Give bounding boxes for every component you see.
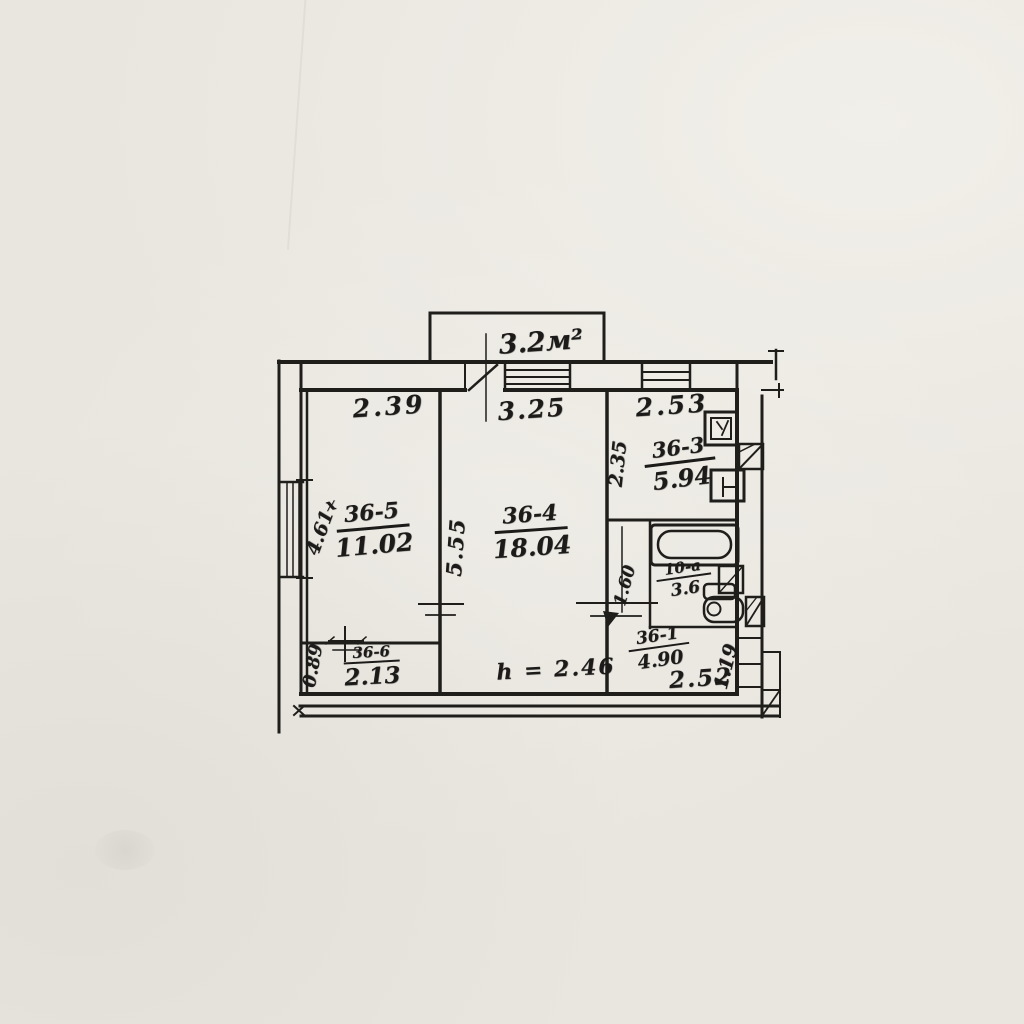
dim-room5-width: 2.39 — [352, 391, 427, 422]
ceiling-height-note: h = 2.46 — [496, 655, 616, 684]
room4-label: 36-4 18.04 — [490, 501, 572, 563]
floor-plan-scan: 3.2м² 2.39 3.25 2.53 х 36-5 11.02 4.61 3… — [0, 0, 1024, 1024]
vent-hatch-icon — [739, 444, 763, 469]
closet-label: 36-6 2.13 — [343, 643, 401, 692]
washbasin — [719, 566, 743, 593]
bathroom-area: 3.6 — [669, 576, 701, 600]
room5-area: 11.02 — [334, 526, 415, 562]
window-living — [505, 362, 570, 390]
room4-area: 18.04 — [492, 529, 572, 563]
dim-room4-width: 3.25 — [497, 395, 568, 426]
window-kitchen — [642, 362, 690, 390]
balcony-area-label: 3.2м² — [498, 326, 584, 360]
bathroom-label: 10-а 3.6 — [654, 556, 714, 603]
room5-label: 36-5 11.02 — [332, 498, 415, 561]
closet-area: 2.13 — [344, 662, 401, 692]
corner-tick-marks — [762, 350, 783, 397]
dim-room4-depth: 5.55 — [443, 517, 469, 578]
dim-kitchen-width: 2.53 — [635, 390, 710, 421]
vent-hatch-icon-3 — [762, 690, 780, 716]
kitchen-label: 36-3 5.94 — [642, 433, 719, 496]
balcony-door — [465, 362, 497, 390]
kitchen-area: 5.94 — [651, 460, 712, 495]
